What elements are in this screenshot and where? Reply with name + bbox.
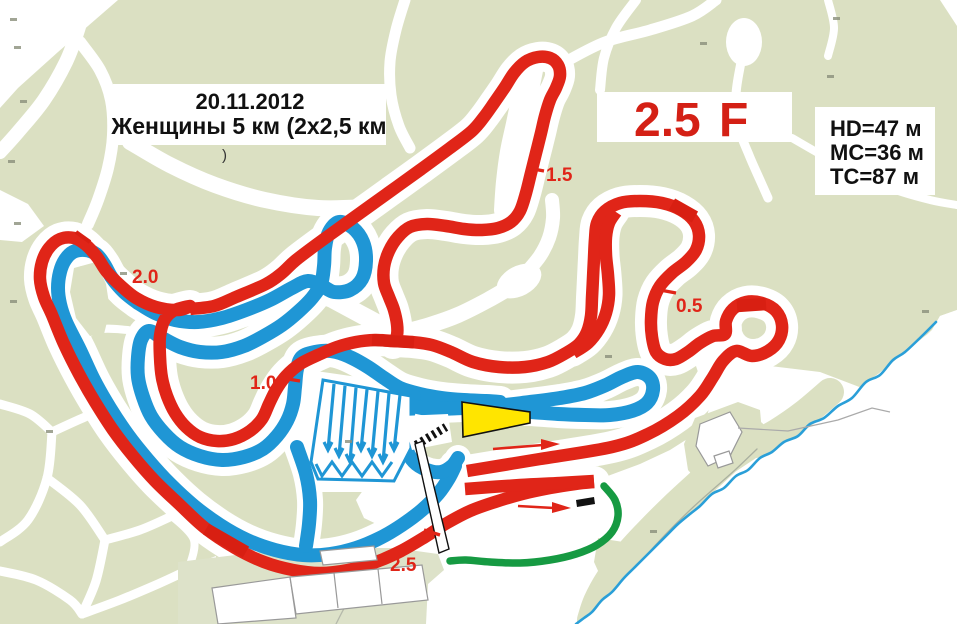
svg-text:TC=87 м: TC=87 м bbox=[830, 164, 919, 189]
svg-text:1.0: 1.0 bbox=[250, 373, 276, 394]
svg-text:F: F bbox=[719, 94, 748, 147]
svg-text:0.5: 0.5 bbox=[676, 296, 703, 317]
svg-text:): ) bbox=[222, 147, 227, 164]
svg-text:20.11.2012: 20.11.2012 bbox=[196, 89, 305, 114]
svg-text:Женщины 5 км (2х2,5 км: Женщины 5 км (2х2,5 км bbox=[110, 113, 386, 139]
svg-text:2.5: 2.5 bbox=[634, 94, 701, 147]
svg-text:HD=47 м: HD=47 м bbox=[830, 116, 921, 141]
svg-text:MC=36 м: MC=36 м bbox=[830, 140, 924, 165]
svg-text:2.0: 2.0 bbox=[132, 267, 158, 288]
svg-text:1.5: 1.5 bbox=[546, 165, 573, 186]
svg-text:2.5: 2.5 bbox=[390, 555, 417, 576]
